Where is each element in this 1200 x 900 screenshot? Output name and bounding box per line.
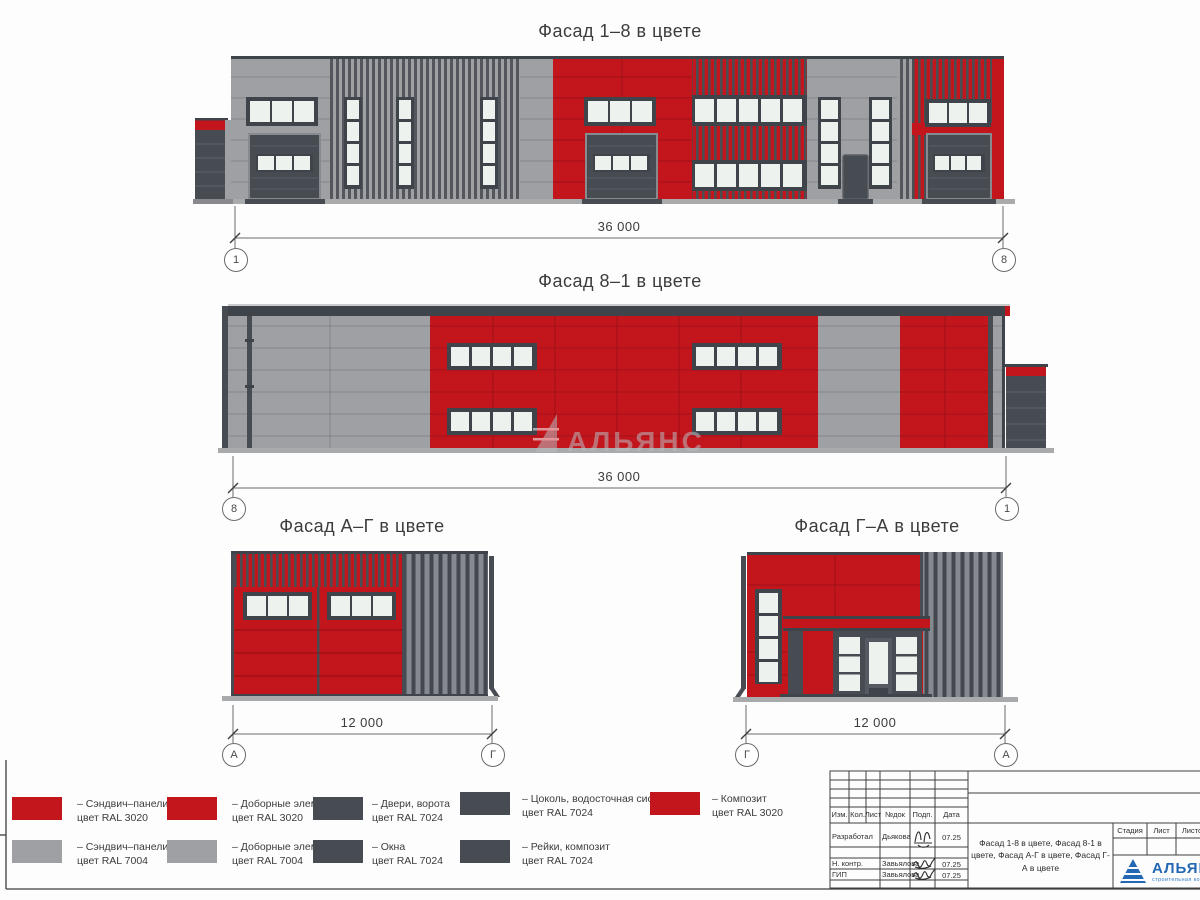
company-logo-text: АЛЬЯНС строительная компания: [1152, 860, 1200, 883]
tb-col-ndok: №док: [880, 808, 910, 823]
tb-col-sheets: Листов: [1176, 825, 1200, 837]
facade-1-8-dimension: 36 000: [519, 219, 719, 234]
tb-col-kol: Кол.: [849, 808, 866, 823]
alliance-logo-icon: [1120, 858, 1146, 884]
tb-name-zavyalova-2: Завьялова: [882, 871, 910, 879]
facade-g-a-drawing: [728, 545, 1028, 707]
axis-marker-1: 1: [224, 248, 248, 272]
tb-name-dyakova: Дьякова: [882, 833, 910, 841]
facade-g-a-dimension: 12 000: [775, 715, 975, 730]
axis-marker-8-left: 8: [222, 497, 246, 521]
facade-a-g-title: Фасад А–Г в цвете: [212, 516, 512, 537]
facade-1-8-drawing: [188, 50, 1048, 210]
tb-role-developed: Разработал: [832, 833, 880, 841]
tb-col-sheet: Лист: [1147, 825, 1176, 837]
tb-date-1: 07.25: [935, 832, 968, 844]
tb-drawing-description: Фасад 1-8 в цвете, Фасад 8-1 в цвете, Фа…: [970, 825, 1111, 886]
tb-col-list: Лист: [866, 808, 880, 823]
tb-col-podp: Подп.: [910, 808, 935, 823]
tb-role-gip: ГИП: [832, 871, 880, 879]
facade-8-1-dimension: 36 000: [519, 469, 719, 484]
facade-g-a-title: Фасад Г–А в цвете: [727, 516, 1027, 537]
facade-1-8-title: Фасад 1–8 в цвете: [220, 21, 1020, 42]
facade-a-g-dimension: 12 000: [262, 715, 462, 730]
tb-name-zavyalova-1: Завьялова: [882, 860, 910, 868]
tb-col-izm: Изм.: [830, 808, 849, 823]
tb-col-data: Дата: [935, 808, 968, 823]
tb-role-ncontrol: Н. контр.: [832, 860, 880, 868]
facade-8-1-title: Фасад 8–1 в цвете: [220, 271, 1020, 292]
tb-col-stage: Стадия: [1113, 825, 1147, 837]
tb-date-3: 07.25: [935, 870, 968, 882]
facade-a-g-drawing: [195, 545, 515, 707]
axis-marker-8: 8: [992, 248, 1016, 272]
company-logo: АЛЬЯНС строительная компания: [1120, 858, 1200, 884]
facade-8-1-drawing: АЛЬЯНС: [188, 300, 1068, 458]
axis-marker-1-right: 1: [995, 497, 1019, 521]
drawing-sheet: Фасад 1–8 в цвете Фасад 8–1 в цвете Фаса…: [0, 0, 1200, 900]
